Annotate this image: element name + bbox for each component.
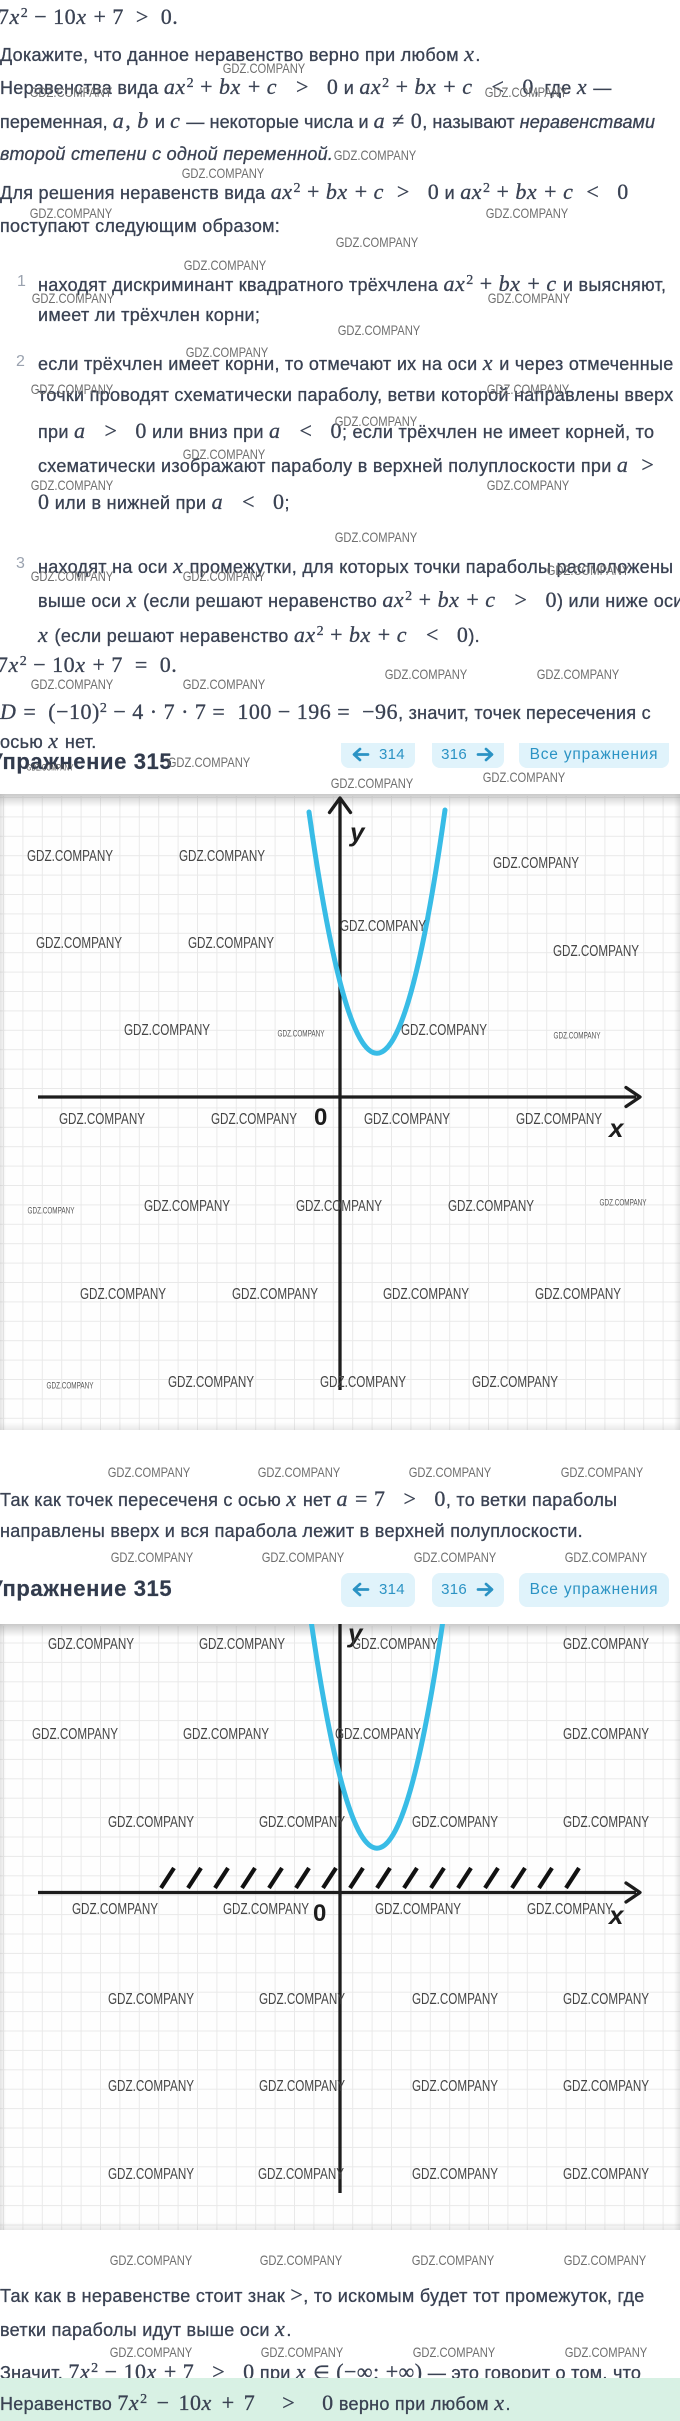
svg-text:0: 0: [314, 1104, 327, 1131]
svg-text:y: y: [348, 817, 366, 847]
svg-text:0: 0: [313, 1900, 326, 1927]
svg-text:x: x: [607, 1113, 625, 1143]
